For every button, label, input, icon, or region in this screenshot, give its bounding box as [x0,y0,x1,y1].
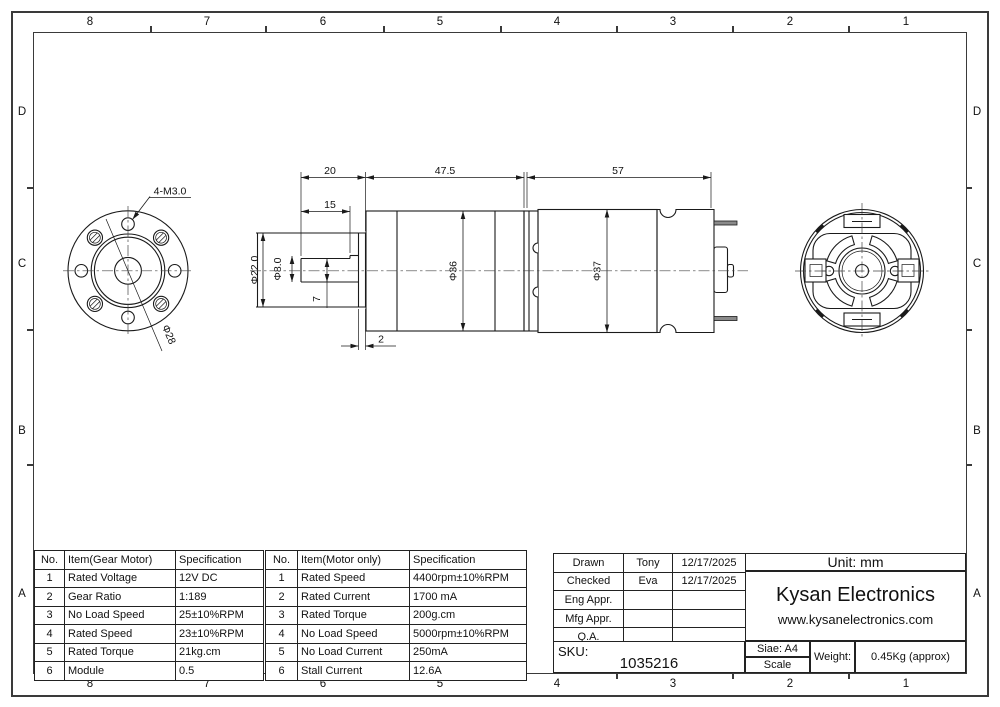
cell [624,591,673,610]
unit-label: Unit: mm [828,554,884,570]
table-row: 5Rated Torque21kg.cm [35,643,264,662]
rear-view [795,203,929,339]
cell: 5 [35,643,65,662]
cell [673,609,746,628]
cell: 23±10%RPM [176,625,264,644]
table-row: 4Rated Speed23±10%RPM [35,625,264,644]
screw-hole [87,296,102,311]
motor-terminal [714,317,737,321]
cell: Tony [624,554,673,573]
cell: Eva [624,572,673,591]
motor-terminal [714,221,737,225]
size-cell: Siae: A4 [745,641,810,657]
title-block: DrawnTony12/17/2025 CheckedEva12/17/2025… [553,553,966,673]
cell: Mfg Appr. [554,609,624,628]
table-row: Mfg Appr. [554,609,746,628]
rear-terminal-right [898,259,919,282]
zone-tick [616,673,618,679]
cell: 200g.cm [410,606,527,625]
cell: 1 [266,569,298,588]
motor-only-spec-table: No. Item(Motor only) Specification 1Rate… [265,550,527,681]
cell: 1:189 [176,588,264,607]
zone-label-bottom-3: 3 [670,678,676,690]
unit-cell: Unit: mm [745,553,966,571]
cell: Rated Speed [298,569,410,588]
table-row: CheckedEva12/17/2025 [554,572,746,591]
dim-label-57: 57 [612,165,624,177]
cell: 4 [35,625,65,644]
col-header: Specification [176,551,264,570]
col-header: Specification [410,551,527,570]
zone-label-bottom-4: 4 [554,678,560,690]
table-row: 1Rated Voltage12V DC [35,569,264,588]
cell [673,591,746,610]
company-website: www.kysanelectronics.com [746,612,965,627]
cell: Rated Speed [65,625,176,644]
cell: 12/17/2025 [673,554,746,573]
dim-label-47-5: 47.5 [435,165,456,177]
dimensions: 20 47.5 57 15 Φ22.0 Φ8.0 7 2 [249,165,748,350]
cell: Rated Current [298,588,410,607]
scale-cell: Scale [745,657,810,673]
cell: 4 [266,625,298,644]
weight-value-cell: 0.45Kg (approx) [855,641,966,673]
table-row: 2Rated Current1700 mA [266,588,527,607]
dim-label-dia8: Φ8.0 [272,257,284,280]
col-header: Item(Gear Motor) [65,551,176,570]
cell: Module [65,662,176,681]
cell: No Load Current [298,643,410,662]
dim-label-2: 2 [378,334,384,346]
leader-line [133,197,151,220]
cell: 1700 mA [410,588,527,607]
dim-label-dia22: Φ22.0 [249,255,261,284]
thread-label: 4-M3.0 [154,186,187,198]
cell: 4400rpm±10%RPM [410,569,527,588]
zone-tick [732,673,734,679]
table-row: 2Gear Ratio1:189 [35,588,264,607]
zone-tick [848,673,850,679]
zone-label-bottom-2: 2 [787,678,793,690]
col-header: No. [266,551,298,570]
table-row: 5No Load Current250mA [266,643,527,662]
col-header: Item(Motor only) [298,551,410,570]
cell: Drawn [554,554,624,573]
table-row: DrawnTony12/17/2025 [554,554,746,573]
bolt-circle-label: Φ28 [159,323,178,346]
table-row: 1Rated Speed4400rpm±10%RPM [266,569,527,588]
cell: 5000rpm±10%RPM [410,625,527,644]
table-row: Eng Appr. [554,591,746,610]
cell: 21kg.cm [176,643,264,662]
cell: Stall Current [298,662,410,681]
cell: 2 [266,588,298,607]
weight-label-cell: Weight: [810,641,855,673]
cell: 3 [266,606,298,625]
weight-label: Weight: [814,651,851,663]
screw-hole [154,296,169,311]
cell: Rated Voltage [65,569,176,588]
approvals-table: DrawnTony12/17/2025 CheckedEva12/17/2025… [553,553,746,647]
cell [624,609,673,628]
company-cell: Kysan Electronics www.kysanelectronics.c… [745,571,966,641]
cell: Rated Torque [298,606,410,625]
cell: 0.5 [176,662,264,681]
motor-drawing: Φ28 4-M3.0 [0,0,1000,560]
rear-terminal-left [805,259,826,282]
dim-label-15: 15 [324,199,336,211]
cell: Gear Ratio [65,588,176,607]
cell: 1 [35,569,65,588]
dim-label-20: 20 [324,165,336,177]
sku-cell: SKU: 1035216 [553,641,745,673]
screw-hole [154,230,169,245]
cell: 25±10%RPM [176,606,264,625]
table-row: 6Module0.5 [35,662,264,681]
cell: 12.6A [410,662,527,681]
company-name: Kysan Electronics [746,584,965,607]
drawing-sheet: 8 7 6 5 4 3 2 1 8 7 6 5 4 3 2 1 D C B A … [0,0,1000,707]
zone-label-bottom-1: 1 [903,678,909,690]
dim-label-7: 7 [311,296,323,302]
connector-block [714,247,728,293]
table-row: 4No Load Speed5000rpm±10%RPM [266,625,527,644]
cell: Checked [554,572,624,591]
cell: No Load Speed [65,606,176,625]
cell: 12V DC [176,569,264,588]
col-header: No. [35,551,65,570]
zone-label-left-a: A [18,588,26,600]
cell: 6 [35,662,65,681]
cell: 250mA [410,643,527,662]
cell: 6 [266,662,298,681]
scale-label: Scale [764,659,792,671]
size-label: Siae: A4 [757,643,798,655]
weight-value: 0.45Kg (approx) [871,651,950,663]
sku-number: 1035216 [554,655,744,672]
cell: 2 [35,588,65,607]
front-view: Φ28 4-M3.0 [63,186,193,352]
cell: 12/17/2025 [673,572,746,591]
cell: No Load Speed [298,625,410,644]
cell: Eng Appr. [554,591,624,610]
table-row: 6Stall Current12.6A [266,662,527,681]
table-row: 3No Load Speed25±10%RPM [35,606,264,625]
cell: 5 [266,643,298,662]
zone-label-right-a: A [973,588,981,600]
cell: 3 [35,606,65,625]
cell: Rated Torque [65,643,176,662]
table-row: 3Rated Torque200g.cm [266,606,527,625]
screw-hole [87,230,102,245]
gear-motor-spec-table: No. Item(Gear Motor) Specification 1Rate… [34,550,264,681]
